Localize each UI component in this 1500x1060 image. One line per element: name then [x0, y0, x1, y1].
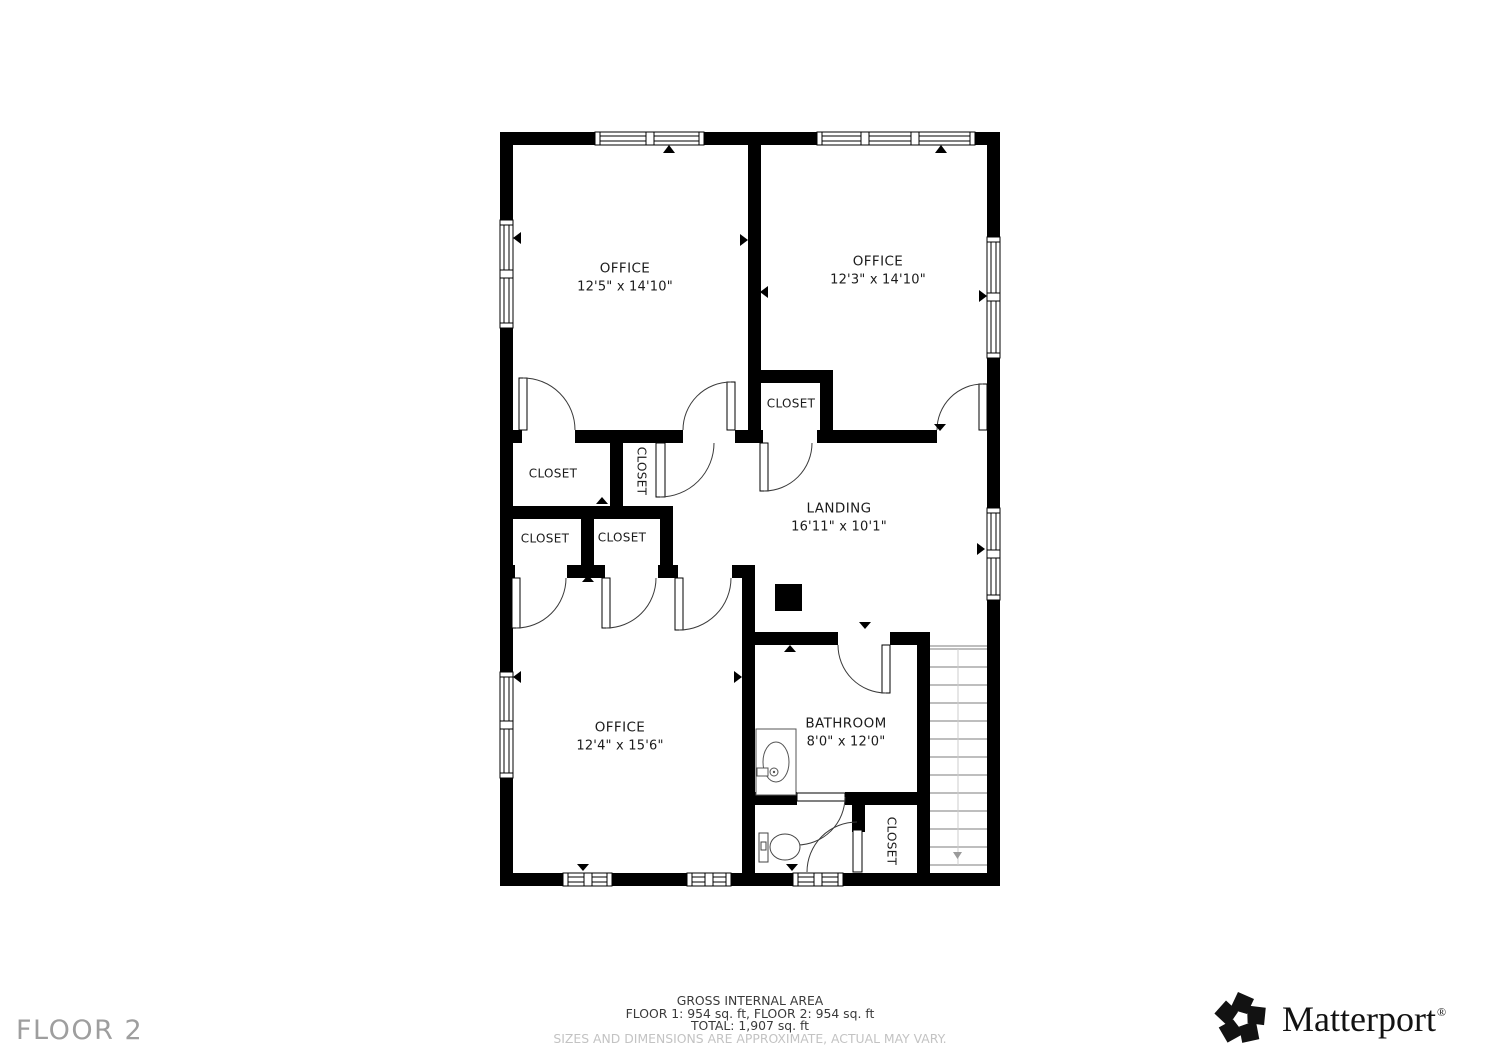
- room-label-office-top-left: OFFICE 12'5" x 14'10": [577, 260, 673, 295]
- door-leaf: [727, 382, 735, 430]
- room-label-closet-hall-large: CLOSET: [529, 467, 577, 482]
- door-leaf: [675, 578, 683, 630]
- room-label-office-bottom: OFFICE 12'4" x 15'6": [576, 719, 663, 754]
- room-label-closet-between-offices: CLOSET: [767, 397, 815, 412]
- wall: [742, 632, 838, 645]
- wall: [575, 430, 683, 443]
- wall: [742, 565, 755, 886]
- wall: [852, 805, 865, 832]
- door-arc: [838, 645, 886, 693]
- wall: [917, 632, 930, 873]
- marker-icon: [760, 286, 768, 298]
- marker-icon: [596, 497, 608, 504]
- door-leaf: [797, 793, 845, 801]
- wall: [845, 792, 930, 805]
- area-summary: GROSS INTERNAL AREA FLOOR 1: 954 sq. ft,…: [553, 995, 946, 1045]
- door-arc: [937, 384, 983, 430]
- door-leaf: [882, 645, 890, 693]
- disclaimer-text: SIZES AND DIMENSIONS ARE APPROXIMATE, AC…: [553, 1033, 946, 1046]
- marker-icon: [859, 622, 871, 629]
- door-arc: [764, 443, 812, 491]
- marker-icon: [513, 671, 521, 683]
- door-leaf: [853, 830, 862, 872]
- marker-icon: [934, 424, 946, 431]
- door-leaf: [656, 443, 665, 497]
- door-arc: [523, 378, 575, 430]
- marker-icon: [935, 145, 947, 153]
- bathroom-fixtures: [756, 729, 800, 862]
- wall: [500, 565, 515, 578]
- room-label-landing: LANDING 16'11" x 10'1": [791, 500, 887, 535]
- room-label-closet-hall-vertical: CLOSET: [634, 447, 649, 495]
- window: [595, 132, 704, 145]
- stairs: [930, 646, 987, 865]
- wall: [567, 565, 605, 578]
- floorplan-drawing: [0, 0, 1500, 1060]
- marker-icon: [977, 543, 985, 555]
- marker-icon: [786, 864, 798, 871]
- marker-icon: [979, 290, 987, 302]
- door-leaf: [602, 578, 610, 628]
- door-arc: [516, 578, 566, 628]
- room-label-closet-hall-lower-right: CLOSET: [598, 531, 646, 546]
- wall: [748, 132, 761, 443]
- matterport-icon: [1213, 991, 1269, 1047]
- door-leaf: [519, 378, 527, 430]
- marker-icon: [784, 645, 796, 652]
- window: [500, 220, 513, 328]
- matterport-wordmark: Matterport®: [1282, 998, 1446, 1040]
- wall: [658, 565, 678, 578]
- window: [563, 873, 612, 886]
- marker-icon: [734, 671, 742, 683]
- door-arc: [679, 578, 731, 630]
- marker-icon: [740, 234, 748, 246]
- marker-icon: [513, 232, 521, 244]
- door-arc: [683, 382, 731, 430]
- window: [817, 132, 975, 145]
- stairs-direction-arrow: [953, 852, 962, 859]
- window: [793, 873, 843, 886]
- wall: [817, 430, 937, 443]
- room-label-bathroom: BATHROOM 8'0" x 12'0": [805, 715, 886, 750]
- floorplan-page: OFFICE 12'5" x 14'10" OFFICE 12'3" x 14'…: [0, 0, 1500, 1060]
- room-label-closet-hall-lower-left: CLOSET: [521, 532, 569, 547]
- door-leaf: [760, 443, 768, 491]
- marker-icon: [663, 145, 675, 153]
- sink-icon: [756, 729, 796, 795]
- walls: [500, 132, 1000, 886]
- window: [987, 508, 1000, 600]
- room-label-office-top-right: OFFICE 12'3" x 14'10": [830, 253, 926, 288]
- door-leaf: [979, 384, 987, 430]
- door-arc: [660, 443, 714, 497]
- window: [987, 237, 1000, 358]
- wall: [500, 430, 522, 443]
- window: [500, 672, 513, 778]
- toilet-icon: [759, 833, 800, 862]
- window: [687, 873, 731, 886]
- wall: [735, 430, 763, 443]
- marker-icon: [577, 864, 589, 871]
- matterport-logo: Matterport®: [1213, 991, 1446, 1047]
- room-label-closet-bathroom: CLOSET: [884, 817, 899, 865]
- registered-mark: ®: [1437, 1005, 1446, 1019]
- door-leaf: [512, 578, 520, 628]
- floor-label: FLOOR 2: [16, 1015, 143, 1046]
- wall: [610, 430, 623, 519]
- chimney-block: [775, 584, 802, 611]
- door-arc: [606, 578, 656, 628]
